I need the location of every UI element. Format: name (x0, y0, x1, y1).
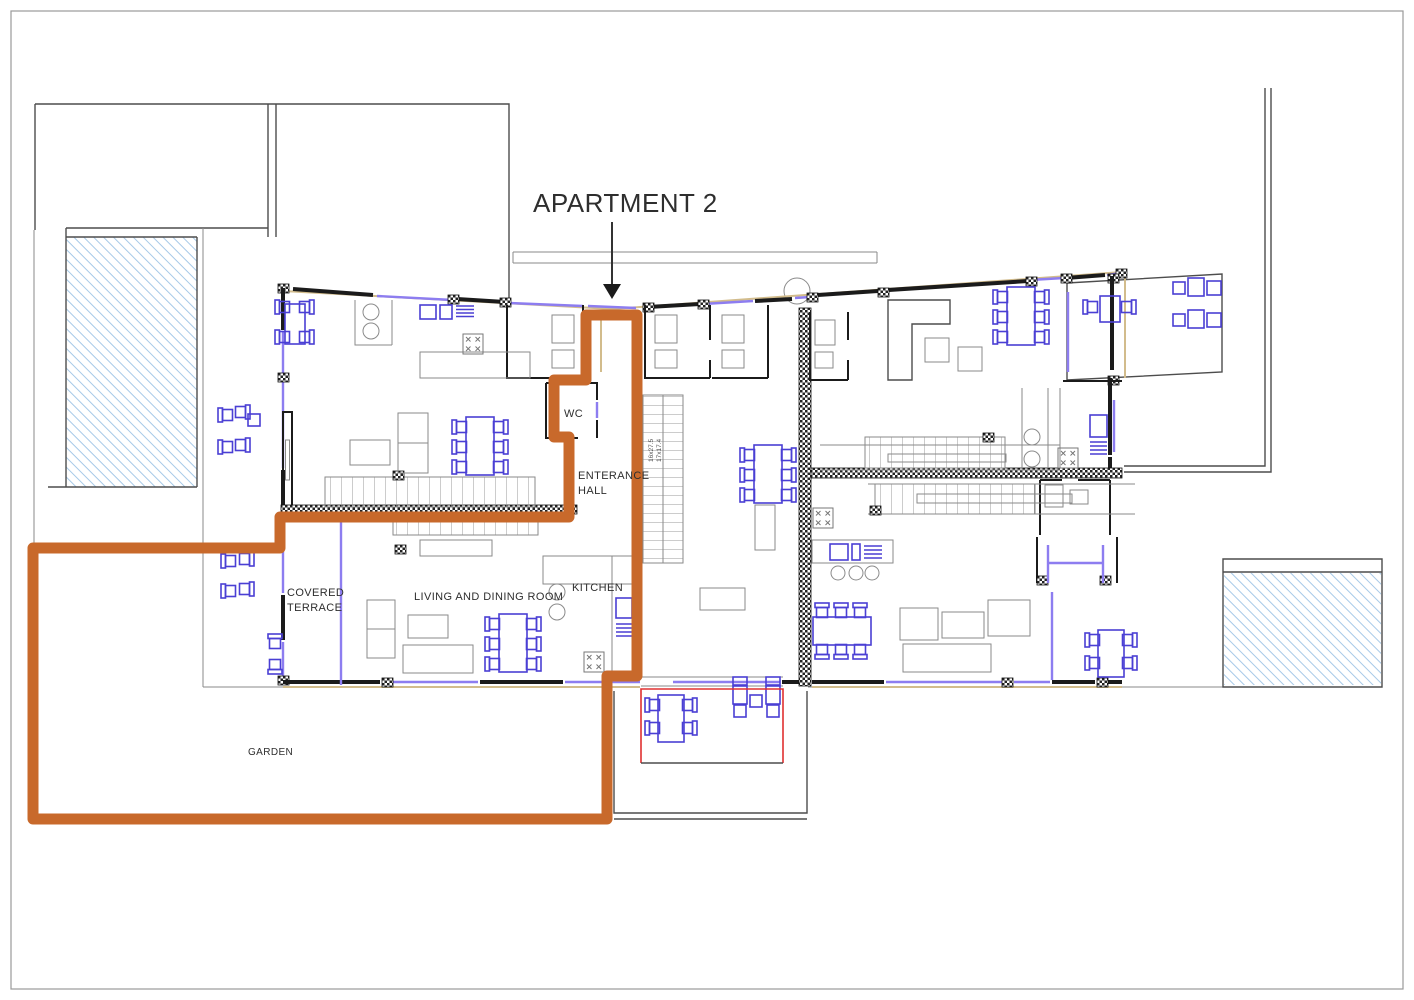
stair-dimension-1: 16x27.5 (648, 438, 655, 462)
floor-plan-page: APARTMENT 2 WC ENTERANCE HALL KITCHEN LI… (0, 0, 1414, 1000)
label-entrance-hall-2: HALL (578, 485, 607, 497)
label-entrance-hall-1: ENTERANCE (578, 470, 649, 482)
label-covered-terrace-2: TERRACE (287, 602, 342, 614)
label-wc: WC (564, 408, 583, 420)
staircases (325, 395, 1135, 563)
annotations: APARTMENT 2 WC ENTERANCE HALL KITCHEN LI… (248, 188, 718, 758)
stair-dimension-2: 17x17.4 (656, 438, 663, 462)
pointer-arrow (603, 222, 621, 299)
label-covered-terrace-1: COVERED (287, 587, 344, 599)
floor-plan-drawing: APARTMENT 2 WC ENTERANCE HALL KITCHEN LI… (0, 0, 1414, 1000)
page-title: APARTMENT 2 (533, 188, 718, 218)
drawing-border (11, 11, 1403, 989)
label-kitchen: KITCHEN (572, 582, 623, 594)
label-living-dining: LIVING AND DINING ROOM (414, 591, 563, 603)
label-garden: GARDEN (248, 747, 293, 758)
